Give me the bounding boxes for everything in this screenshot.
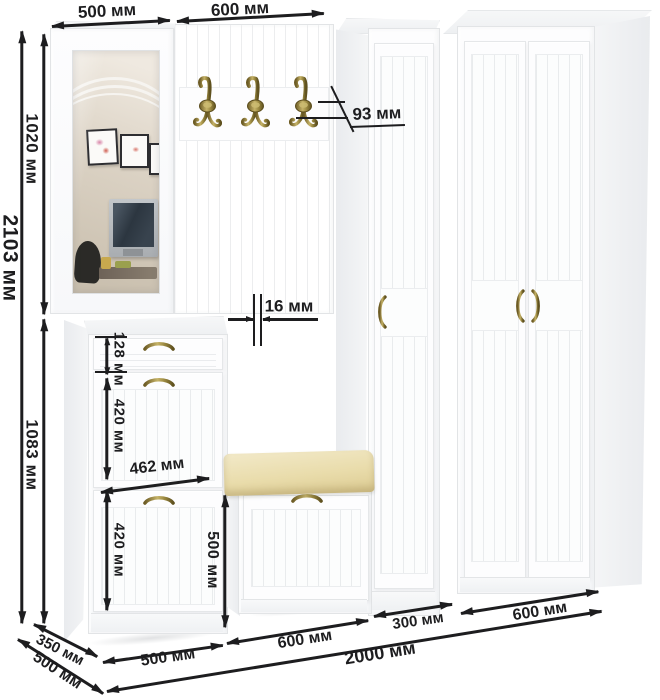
wardrobe-side-panel xyxy=(591,16,650,590)
dim-label-hook-depth: 93 мм xyxy=(349,104,405,128)
bench xyxy=(238,490,372,614)
dim-arrow-upper-height xyxy=(43,34,46,314)
wardrobe-door-right-lower-panel xyxy=(535,330,583,562)
chest-plinth xyxy=(91,613,223,632)
bench-drawer-front xyxy=(243,495,369,601)
drawer-handle-icon xyxy=(143,377,175,387)
dim-label-lower-height: 1083 мм xyxy=(24,419,41,490)
dim-label-drawer-height: 128 мм xyxy=(112,332,127,386)
cabinet-door-upper-panel xyxy=(380,56,428,290)
dim-label-lower-door-height: 420 мм xyxy=(112,523,127,577)
dim-leader-line xyxy=(296,117,348,119)
dim-label-hook-panel-width: 600 мм xyxy=(210,0,269,19)
wardrobe-door-left-mid-rail xyxy=(471,280,519,332)
dim-arrow-drawer-height xyxy=(106,338,109,374)
dim-label-upper-door-height: 420 мм xyxy=(112,399,127,453)
dim-label-chest-width: 500 мм xyxy=(140,646,197,669)
dim-arrow-lower-door-height xyxy=(106,490,109,610)
dim-arrow-panel-thickness-right xyxy=(263,318,318,321)
dim-arrow-upper-door-height xyxy=(106,378,109,479)
drawer-handle-icon xyxy=(291,493,323,503)
dim-tick xyxy=(253,294,255,346)
bench-plinth xyxy=(241,599,367,612)
door-handle-icon xyxy=(531,288,541,324)
wardrobe-door-right xyxy=(528,41,590,579)
mirror-cabinet xyxy=(50,28,174,314)
dim-tick xyxy=(260,294,262,346)
glass-sheen xyxy=(73,51,159,293)
dim-label-total-height: 2103 мм xyxy=(0,214,21,301)
wardrobe-door-right-mid-rail xyxy=(535,280,583,332)
dim-label-mirror-width: 500 мм xyxy=(77,1,136,21)
coat-hook-icon xyxy=(193,74,222,136)
door-handle-icon xyxy=(515,288,525,324)
wardrobe-door-right-upper-panel xyxy=(535,54,583,282)
dim-label-total-width: 2000 мм xyxy=(343,639,417,668)
coat-hook-panel xyxy=(174,24,334,314)
dim-arrow-lower-height xyxy=(43,319,46,623)
coat-hook-icon xyxy=(241,74,270,136)
mirror xyxy=(72,50,160,294)
wardrobe-door-left-upper-panel xyxy=(471,54,519,282)
coat-hook-icon xyxy=(289,74,318,136)
bench-front-panel xyxy=(251,509,361,587)
dim-arrow-bench-height xyxy=(224,495,227,627)
cabinet-door-mid-rail xyxy=(380,288,428,338)
door-handle-icon xyxy=(377,294,387,330)
dim-arrow-panel-thickness-left xyxy=(228,318,253,321)
hallway-furniture-dimension-diagram: 500 мм 600 мм 2103 мм 1020 мм 1083 мм 12… xyxy=(0,0,660,700)
chest-side-panel xyxy=(64,320,90,642)
wardrobe-door-left-lower-panel xyxy=(471,330,519,562)
wardrobe xyxy=(457,26,595,594)
dim-label-bench-height: 500 мм xyxy=(204,531,220,589)
dim-label-upper-height: 1020 мм xyxy=(24,113,41,184)
wardrobe-plinth xyxy=(460,577,590,592)
bench-cushion xyxy=(223,450,374,496)
wardrobe-door-left xyxy=(464,41,526,579)
cabinet-door-lower-panel xyxy=(380,336,428,574)
drawer-handle-icon xyxy=(143,495,175,505)
dim-label-panel-thickness: 16 мм xyxy=(265,298,314,315)
drawer-handle-icon xyxy=(143,341,175,351)
